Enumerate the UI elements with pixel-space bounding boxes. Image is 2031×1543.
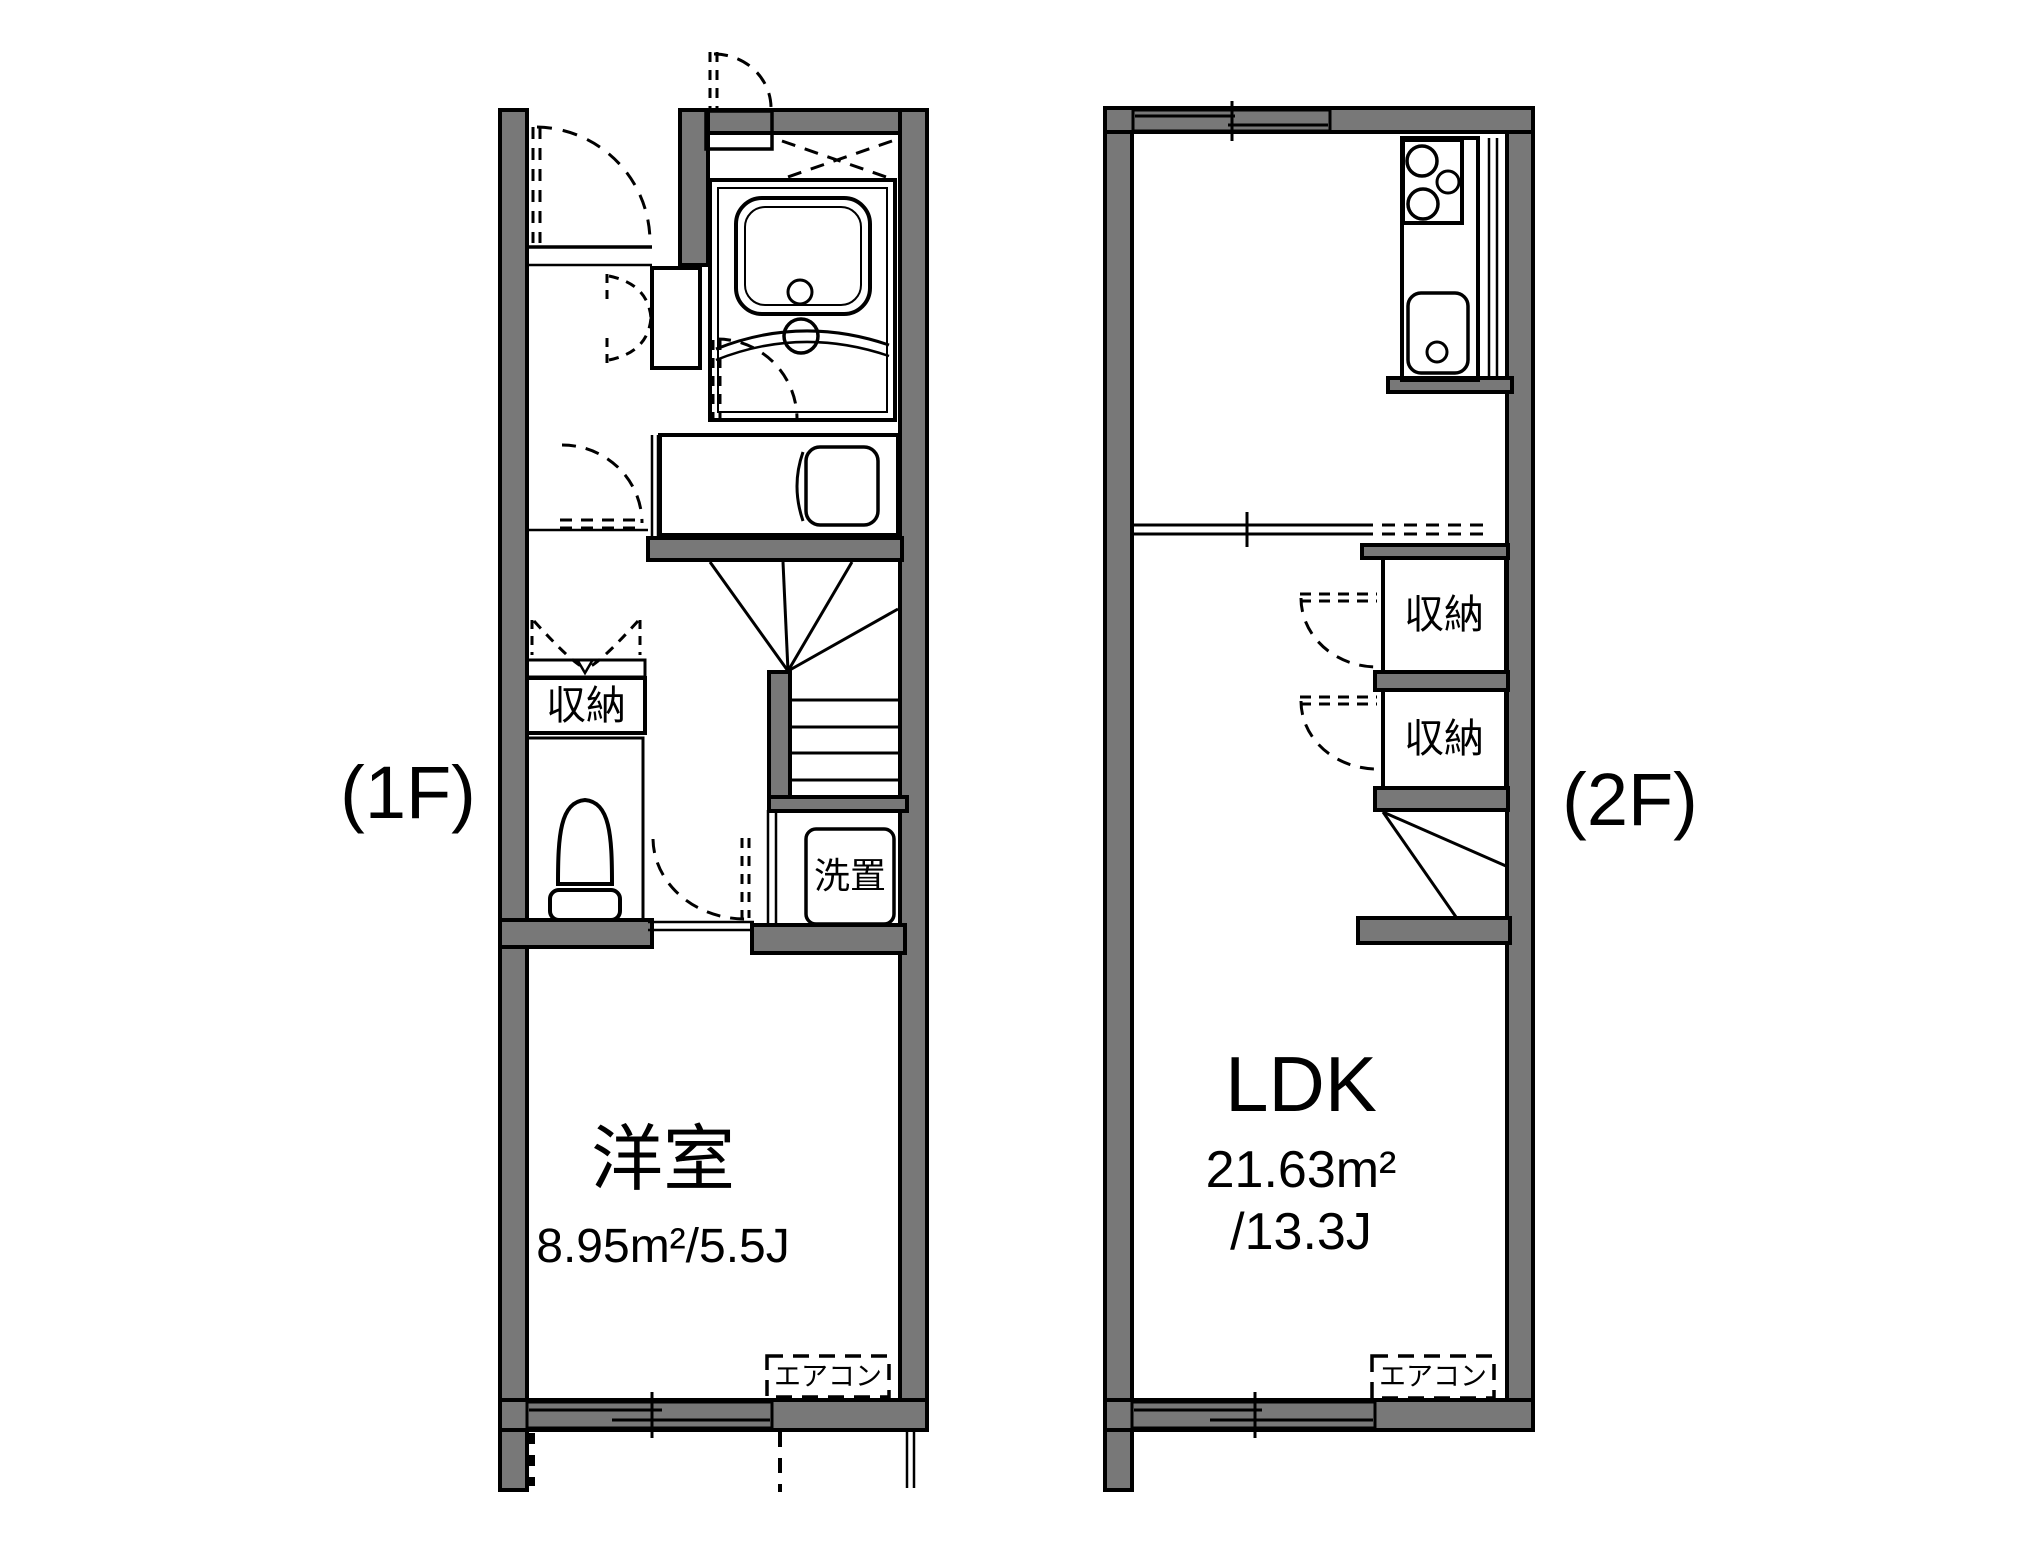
room-area-j-2f: /13.3J — [1230, 1206, 1372, 1258]
toilet-room — [527, 738, 643, 920]
vanity — [652, 435, 898, 538]
below-wall-marks-1f — [531, 1430, 914, 1492]
floor-label-1f: (1F) — [340, 756, 476, 830]
aircon-label-2f: エアコン — [1379, 1364, 1487, 1391]
floor-label-2f: (2F) — [1562, 763, 1698, 837]
storage-label-1f: 収納 — [546, 686, 626, 726]
straight-stairs — [790, 700, 899, 780]
stove — [1403, 140, 1462, 223]
kitchen-counter — [1402, 138, 1497, 380]
laundry-label-1f: 洗置 — [814, 858, 886, 894]
genkan-step — [527, 247, 652, 265]
winder-stairs — [710, 562, 898, 671]
floorplan-drawing — [0, 0, 2031, 1543]
kitchen-sink — [1408, 293, 1468, 373]
stairs-2f — [1383, 812, 1506, 917]
walls-1f — [500, 110, 927, 1490]
entry-hall-door — [533, 127, 650, 243]
plan-2f — [1105, 101, 1533, 1490]
unit-bath — [710, 141, 895, 420]
bath-door — [713, 339, 797, 419]
bath-faucet — [784, 319, 818, 353]
storage-doors-2f — [1300, 594, 1377, 769]
aircon-label-1f: エアコン — [774, 1364, 882, 1391]
toilet — [550, 800, 620, 920]
room-area-1f: 8.95m²/5.5J — [536, 1223, 789, 1271]
storage-label-2f-bottom: 収納 — [1404, 719, 1484, 759]
plan-1f — [500, 52, 927, 1492]
shoe-cabinet-doors — [607, 274, 651, 364]
hallway-door — [527, 445, 648, 530]
bathtub — [736, 198, 870, 314]
room-label-2f: LDK — [1225, 1045, 1377, 1123]
room-area-m2-2f: 21.63m² — [1206, 1144, 1397, 1196]
room-partition-2f — [1132, 512, 1486, 547]
floorplan-canvas: (1F) 収納 洗置 洋室 8.95m²/5.5J エアコン (2F) 収納 収… — [0, 0, 2031, 1543]
stairs-1f — [710, 562, 899, 780]
room-door-1f — [648, 838, 754, 930]
washbasin — [806, 447, 878, 525]
shoe-cabinet — [652, 268, 700, 368]
storage-label-2f-top: 収納 — [1404, 595, 1484, 635]
room-label-1f: 洋室 — [591, 1124, 735, 1196]
